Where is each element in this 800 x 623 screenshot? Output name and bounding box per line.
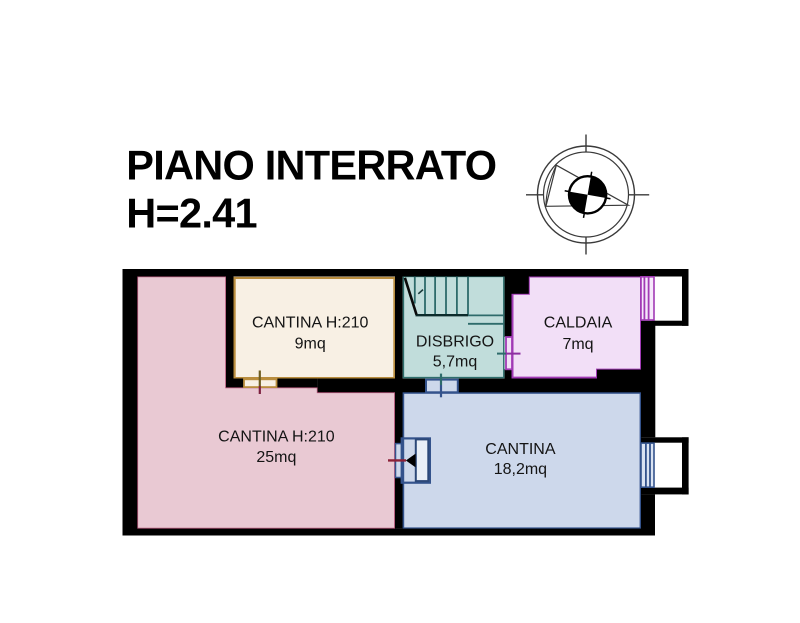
svg-text:PIANO INTERRATO: PIANO INTERRATO	[126, 141, 496, 188]
svg-text:CANTINA H:210: CANTINA H:210	[218, 429, 335, 446]
svg-text:CANTINA H:210: CANTINA H:210	[252, 315, 369, 332]
svg-text:5,7mq: 5,7mq	[433, 353, 477, 370]
svg-text:7mq: 7mq	[562, 336, 593, 353]
svg-text:DISBRIGO: DISBRIGO	[416, 333, 494, 350]
svg-text:25mq: 25mq	[256, 449, 296, 466]
svg-text:9mq: 9mq	[295, 335, 326, 352]
svg-text:CALDAIA: CALDAIA	[544, 315, 613, 332]
svg-text:18,2mq: 18,2mq	[494, 461, 547, 478]
svg-text:CANTINA: CANTINA	[485, 441, 556, 458]
svg-text:H=2.41: H=2.41	[126, 190, 256, 237]
